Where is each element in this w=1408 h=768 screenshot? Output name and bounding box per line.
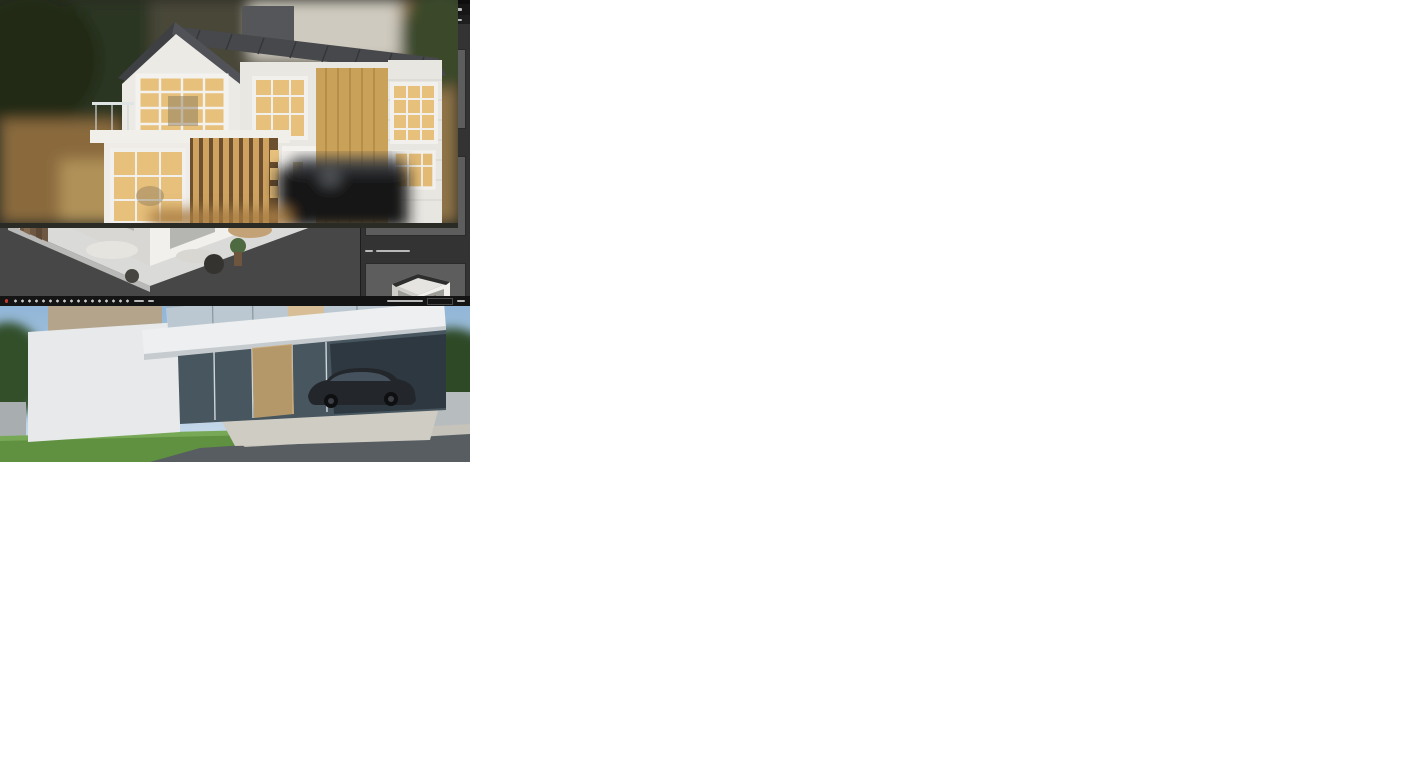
collage-grid: Project Wofltfiow: [0, 0, 1408, 768]
record-dot[interactable]: [5, 299, 8, 302]
model-photo: [0, 0, 458, 228]
model-photo-art: [0, 0, 458, 223]
keyframe-dots[interactable]: [12, 298, 130, 304]
frame-counter-box: [427, 298, 453, 305]
timeline-bar: [0, 296, 470, 306]
